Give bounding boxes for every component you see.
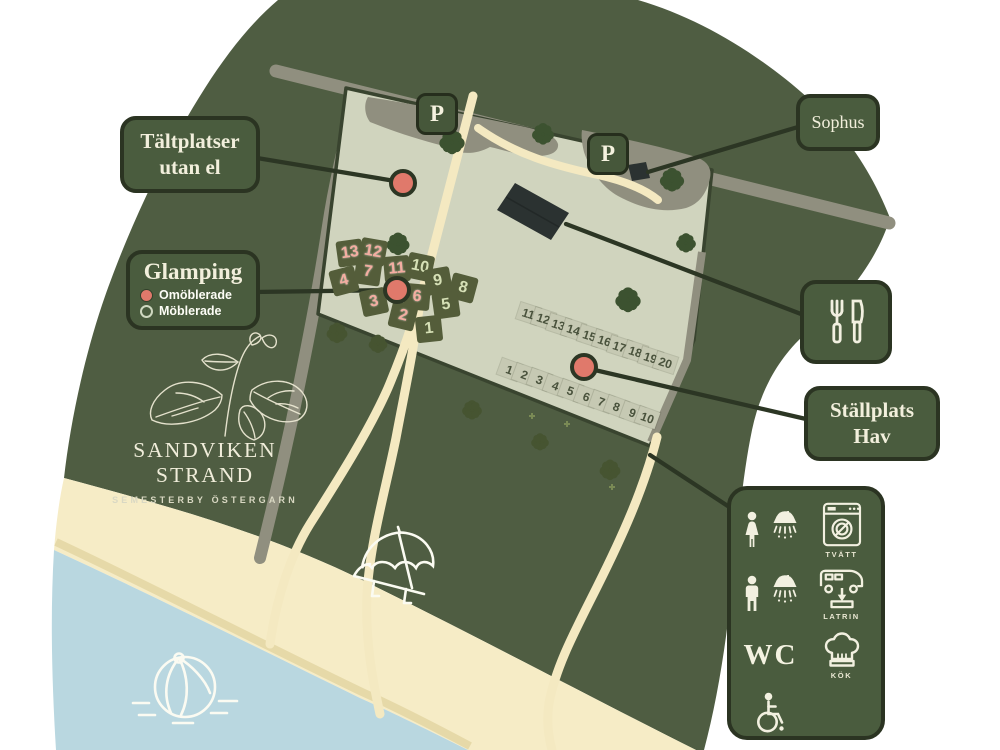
stallplats-label-line2: Hav bbox=[808, 424, 936, 450]
restaurant-callout bbox=[800, 280, 892, 364]
glamping-callout: Glamping Omöblerade Möblerade bbox=[126, 250, 260, 330]
outline-dot-icon bbox=[140, 305, 153, 318]
latrine-facility: LATRIN bbox=[817, 567, 867, 621]
kitchen-label: KÖK bbox=[831, 671, 852, 680]
man-icon bbox=[741, 575, 763, 613]
wc-facility: WC bbox=[744, 639, 798, 672]
chef-hat-icon bbox=[822, 630, 862, 668]
sophus-callout: Sophus bbox=[796, 94, 880, 151]
glamping-tent-7: 7 bbox=[353, 257, 382, 286]
laundry-label: TVÄTT bbox=[825, 550, 857, 559]
accessible-facility bbox=[752, 692, 790, 734]
wheelchair-icon bbox=[752, 692, 790, 734]
logo-name: SANDVIKEN STRAND bbox=[88, 438, 322, 488]
stallplats-callout: Ställplats Hav bbox=[804, 386, 940, 461]
glamping-title: Glamping bbox=[136, 259, 250, 285]
legend-omoblerade: Omöblerade bbox=[140, 288, 250, 302]
woman-icon bbox=[741, 511, 763, 549]
glamping-tent-1: 1 bbox=[415, 315, 444, 344]
wc-label: WC bbox=[744, 639, 798, 672]
laundry-facility: TVÄTT bbox=[822, 502, 862, 559]
logo-subtitle: SEMESTERBY ÖSTERGARN bbox=[88, 495, 322, 505]
glamping-marker bbox=[383, 276, 411, 304]
washing-machine-icon bbox=[822, 502, 862, 547]
men-shower-facility bbox=[741, 575, 800, 613]
legend-moblerade: Möblerade bbox=[140, 304, 250, 318]
shower-icon bbox=[770, 511, 800, 543]
stallplats-label-line1: Ställplats bbox=[808, 398, 936, 424]
parking-sign-1: P bbox=[416, 93, 458, 135]
legend-moblerade-label: Möblerade bbox=[159, 304, 222, 318]
parking-sign-2: P bbox=[587, 133, 629, 175]
site-logo: SANDVIKEN STRAND SEMESTERBY ÖSTERGARN bbox=[88, 438, 322, 505]
tent-sites-marker bbox=[389, 169, 417, 197]
parking-label: P bbox=[430, 101, 444, 127]
facilities-panel: TVÄTT bbox=[727, 486, 885, 740]
tent-sites-callout: Tältplatser utan el bbox=[120, 116, 260, 193]
tent-sites-label-line2: utan el bbox=[126, 155, 254, 181]
stallplats-marker bbox=[570, 353, 598, 381]
legend-omoblerade-label: Omöblerade bbox=[159, 288, 232, 302]
kitchen-facility: KÖK bbox=[822, 630, 862, 680]
women-shower-facility bbox=[741, 511, 800, 549]
campsite-map: 11121314151617181920 12345678910 1312471… bbox=[0, 0, 1000, 750]
fork-and-knife-icon bbox=[823, 297, 869, 347]
parking-label: P bbox=[601, 141, 615, 167]
shower-icon bbox=[770, 575, 800, 607]
sophus-label: Sophus bbox=[811, 112, 864, 132]
filled-red-dot-icon bbox=[140, 289, 153, 302]
tent-sites-label-line1: Tältplatser bbox=[126, 129, 254, 155]
latrine-label: LATRIN bbox=[823, 612, 860, 621]
rv-latrine-icon bbox=[817, 567, 867, 609]
